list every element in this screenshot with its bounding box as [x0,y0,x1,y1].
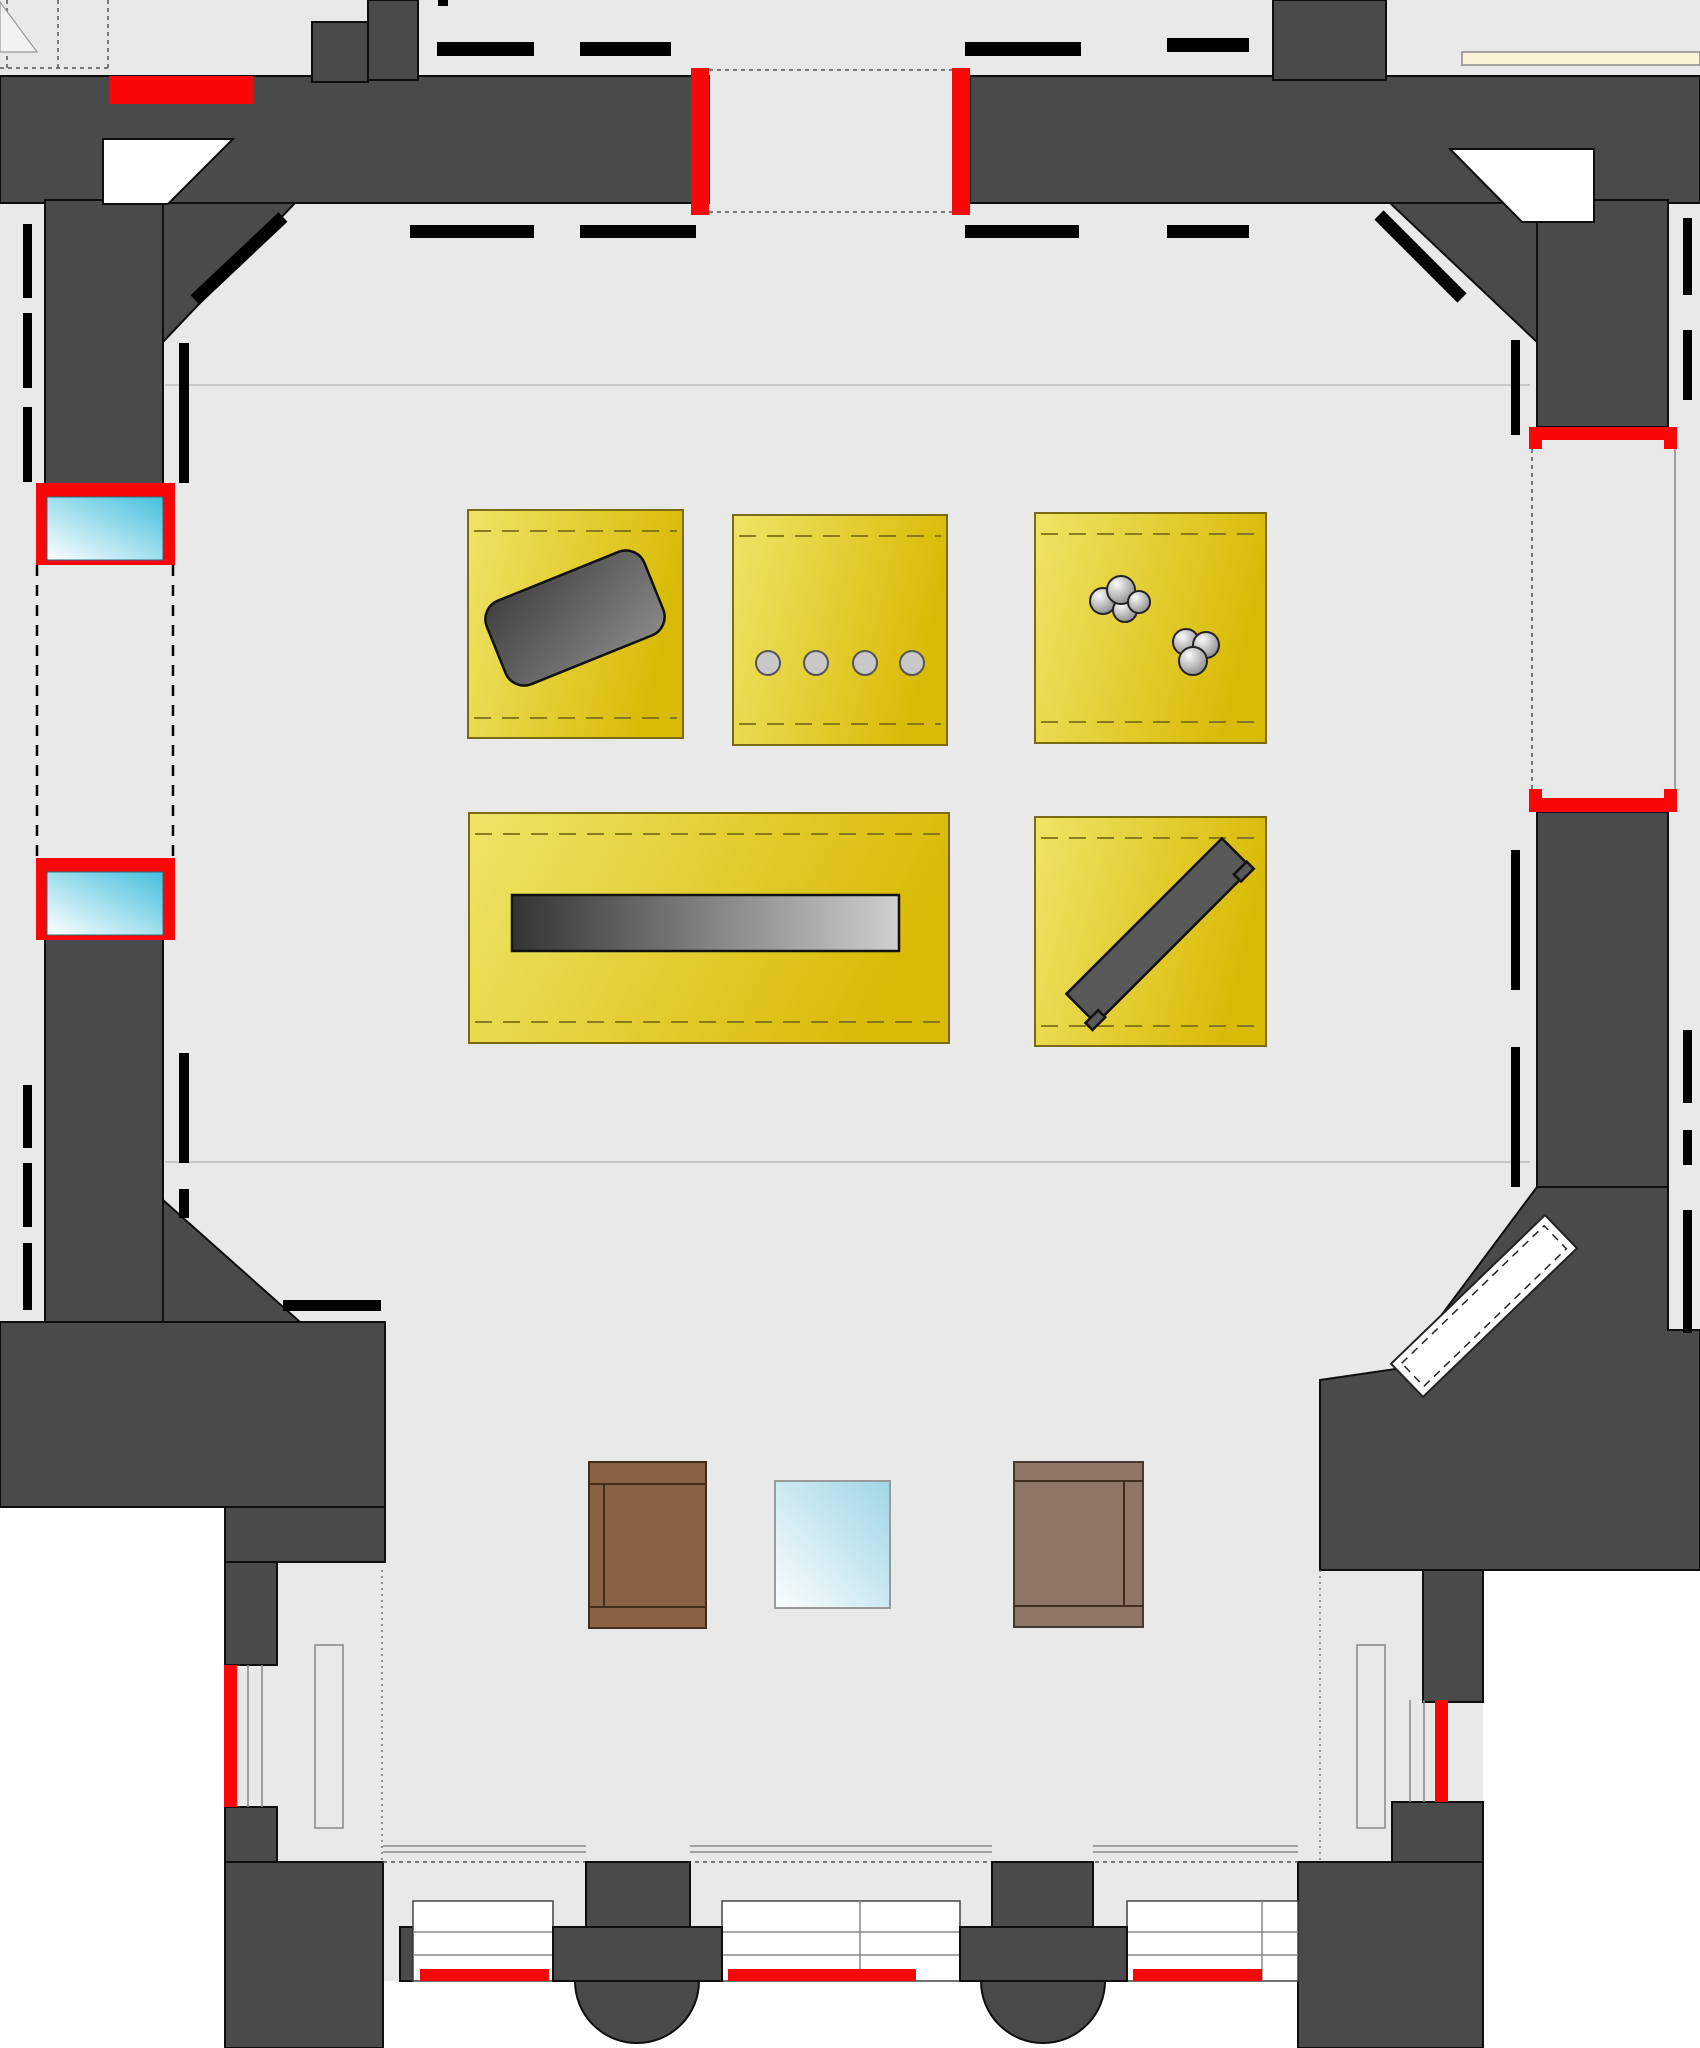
wall-footer-right [1298,1862,1483,2048]
wall-marker [1511,340,1520,435]
side-door-red-left [224,1665,237,1807]
wall-nub-left [400,1927,413,1981]
facade-marker-left [23,407,32,482]
outside-area-bottom-left [0,1507,225,2048]
case-platform [1035,513,1266,743]
wall-left-lower-column [45,938,163,1322]
portico-bay-left [413,1901,553,1981]
display-case-3 [1035,513,1266,743]
display-case-4 [469,813,949,1043]
wall-footer-left [225,1862,383,2048]
facade-marker-right [1683,1030,1692,1103]
window-glass-lower-left [47,872,163,935]
artifact-sphere [1128,591,1150,613]
wall-corner-mass-left [0,1322,385,1507]
bay-red-nub [1664,789,1677,798]
artifact-disc [804,651,828,675]
bay-red-bar-top [1529,427,1677,440]
facade-marker-left [23,313,32,388]
wall-pier-right-upper [1423,1570,1483,1702]
wall-pier-right-lower [1392,1802,1483,1864]
display-case-1 [468,510,683,738]
wall-top-left-column [368,0,418,80]
artifact-disc [853,651,877,675]
wall-marker [438,0,448,6]
wall-chamfer-bottom-left [163,1200,300,1322]
wall-marker [410,225,534,238]
wall-marker [1511,850,1520,990]
bay-red-nub [1529,440,1542,449]
wall-marker [179,1189,189,1218]
wood-cabinet-left [589,1462,706,1628]
pilaster-outline-left [315,1645,343,1828]
wall-marker [965,42,1081,56]
door-jamb-left-red [691,68,709,215]
wall-right-lower-column [1537,812,1668,1189]
artifact-disc [756,651,780,675]
portico-bay-right [1127,1901,1298,1981]
door-jamb-right-red [952,68,970,215]
pilaster-outline-right [1357,1645,1385,1828]
wall-marker [1511,1047,1520,1187]
facade-marker-right [1683,1130,1692,1165]
entrance-red-bar [420,1969,549,1981]
portico-bay-middle [722,1901,960,1981]
wall-right-upper-column [1537,200,1668,427]
facade-marker-left [23,1163,32,1227]
wall-marker [1167,225,1249,238]
wood-cabinet-right [1014,1462,1143,1627]
entrance-red-bar [728,1969,916,1981]
case-platform [733,515,947,745]
entrance-red-bar [1133,1969,1262,1981]
facade-marker-right [1683,330,1692,400]
facade-marker-right [1683,218,1692,295]
wall-chamfer-top-right [1390,203,1537,342]
sill-beige-top-right [1462,52,1700,65]
wall-marker [179,343,189,483]
glass-floor-panel [775,1481,890,1608]
bay-red-nub [1529,789,1542,798]
facade-marker-left [23,224,32,298]
wall-left-upper-column [45,200,163,485]
door-highlight-top-left [109,76,253,104]
wall-top-left-step [312,22,368,82]
side-door-red-right [1435,1700,1448,1802]
wall-pier-left-lower [225,1807,277,1864]
wall-top-right-column [1273,0,1386,80]
floor-plan-svg [0,0,1700,2048]
annex-triangle [0,2,37,52]
wall-marker [283,1300,381,1311]
floor-plan-canvas [0,0,1700,2048]
bay-red-bar-bottom [1529,798,1677,812]
wall-step-left [225,1507,385,1562]
facade-marker-left [23,1085,32,1148]
facade-marker-left [23,1243,32,1310]
artifact-sphere [1179,647,1207,675]
wall-marker [580,42,671,56]
wall-corner-mass-right [1320,1187,1700,1570]
wall-marker [179,1053,189,1163]
facade-marker-right [1683,1210,1692,1333]
annex-dashed-zone [0,0,108,68]
artifact-beam [512,895,899,951]
outside-area-bottom [225,1981,1483,2048]
bay-red-nub [1664,440,1677,449]
wall-marker [1167,38,1249,52]
wall-marker [580,225,696,238]
display-case-5 [1035,817,1266,1046]
window-glass-upper-left [47,497,163,560]
wall-marker [437,42,534,56]
artifact-disc [900,651,924,675]
display-case-2 [733,515,947,745]
outside-area-bottom-right [1483,1570,1700,2048]
wall-pier-left-upper [225,1562,277,1665]
wall-marker [965,225,1079,238]
